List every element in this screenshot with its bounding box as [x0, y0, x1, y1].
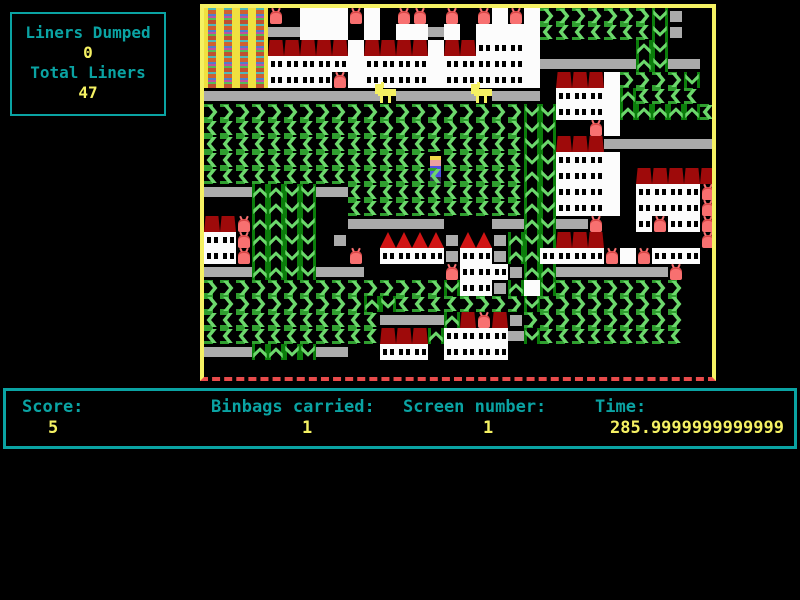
chevron-left-glyph — [364, 328, 380, 344]
gray-block-tile — [444, 232, 460, 248]
ladder-down-tile — [524, 104, 540, 120]
chevron-left-glyph — [268, 328, 284, 344]
building-window-tile — [572, 200, 588, 216]
chevron-left-tile — [220, 168, 236, 184]
chevron-left-tile — [236, 136, 252, 152]
building-window-tile — [444, 328, 460, 344]
chevron-left-glyph — [220, 312, 236, 328]
chevron-right-glyph — [556, 296, 572, 312]
roof-flat-tile — [300, 40, 316, 56]
ladder-up-glyph — [268, 264, 284, 280]
chevron-left-tile — [252, 136, 268, 152]
chevron-right-glyph — [252, 280, 268, 296]
chevron-left-tile — [332, 168, 348, 184]
binbag-tile — [332, 72, 348, 88]
chevron-left-tile — [364, 120, 380, 136]
building-window-tile — [556, 152, 572, 168]
chevron-left-tile — [284, 120, 300, 136]
building-window-tile — [284, 56, 300, 72]
screen-number-label: Screen number: — [403, 397, 546, 417]
building-window-tile — [476, 56, 492, 72]
chevron-left-tile — [284, 328, 300, 344]
chevron-left-glyph — [636, 88, 652, 104]
building-window-tile — [268, 56, 284, 72]
chevron-left-tile — [300, 136, 316, 152]
chevron-right-tile — [220, 296, 236, 312]
chevron-right-tile — [316, 104, 332, 120]
chevron-left-glyph — [492, 168, 508, 184]
chevron-left-tile — [380, 136, 396, 152]
chevron-left-glyph — [588, 328, 604, 344]
rainbow-building-tile — [220, 56, 236, 72]
ladder-down-glyph — [300, 264, 316, 280]
building-tile — [604, 200, 620, 216]
building-window-tile — [460, 56, 476, 72]
binbag-tile — [668, 264, 684, 280]
ladder-down-glyph — [540, 120, 556, 136]
chevron-left-glyph — [364, 152, 380, 168]
chevron-left-glyph — [460, 200, 476, 216]
chevron-left-glyph — [476, 136, 492, 152]
chevron-left-glyph — [252, 136, 268, 152]
ladder-down-tile — [540, 200, 556, 216]
building-tile — [428, 56, 444, 72]
ladder-up-glyph — [444, 312, 460, 328]
ladder-up-tile — [668, 104, 684, 120]
binbag-tile — [396, 8, 412, 24]
building-window-tile — [508, 56, 524, 72]
ladder-down-glyph — [524, 136, 540, 152]
game-playfield[interactable] — [200, 4, 716, 381]
building-window-tile — [460, 280, 476, 296]
chevron-right-glyph — [380, 104, 396, 120]
building-window-tile — [572, 152, 588, 168]
building-window-tile — [460, 248, 476, 264]
gray-block-tile — [492, 232, 508, 248]
rainbow-building-tile — [220, 40, 236, 56]
chevron-right-glyph — [508, 120, 524, 136]
chevron-right-tile — [204, 296, 220, 312]
chevron-left-tile — [428, 200, 444, 216]
roof-pitched-tile — [476, 232, 492, 248]
chevron-left-glyph — [412, 184, 428, 200]
roof-pitched-tile — [412, 232, 428, 248]
building-tile — [476, 24, 492, 40]
chevron-left-tile — [412, 296, 428, 312]
chevron-left-tile — [364, 136, 380, 152]
chevron-left-tile — [380, 152, 396, 168]
ladder-down-tile — [284, 232, 300, 248]
building-tile — [412, 24, 428, 40]
building-window-tile — [492, 40, 508, 56]
ladder-up-tile — [268, 200, 284, 216]
chevron-right-glyph — [588, 280, 604, 296]
ladder-down-glyph — [524, 296, 540, 312]
roof-flat-tile — [588, 72, 604, 88]
binbag-tile — [236, 232, 252, 248]
ladder-down-tile — [444, 280, 460, 296]
building-window-tile — [460, 344, 476, 360]
chevron-left-tile — [204, 328, 220, 344]
chevron-right-tile — [332, 104, 348, 120]
chevron-left-glyph — [236, 328, 252, 344]
binbag-glyph — [446, 11, 458, 24]
chevron-left-tile — [236, 328, 252, 344]
chevron-left-glyph — [364, 200, 380, 216]
conveyor-tile — [508, 216, 524, 232]
chevron-left-glyph — [204, 152, 220, 168]
chevron-right-tile — [220, 104, 236, 120]
roof-flat-tile — [268, 40, 284, 56]
chevron-left-tile — [652, 328, 668, 344]
conveyor-tile — [668, 56, 684, 72]
chevron-right-glyph — [348, 280, 364, 296]
chevron-left-tile — [316, 312, 332, 328]
chevron-left-tile — [220, 136, 236, 152]
ladder-up-glyph — [268, 344, 284, 360]
ladder-down-tile — [284, 248, 300, 264]
chevron-left-tile — [236, 168, 252, 184]
chevron-right-glyph — [236, 104, 252, 120]
conveyor-tile — [652, 264, 668, 280]
ladder-up-glyph — [668, 104, 684, 120]
ladder-up-tile — [636, 104, 652, 120]
chevron-right-glyph — [572, 296, 588, 312]
binbag-tile — [508, 8, 524, 24]
ladder-up-tile — [268, 184, 284, 200]
conveyor-tile — [316, 264, 332, 280]
chevron-right-tile — [540, 312, 556, 328]
ladder-down-tile — [300, 232, 316, 248]
building-window-tile — [396, 56, 412, 72]
ladder-down-glyph — [540, 280, 556, 296]
chevron-right-tile — [396, 120, 412, 136]
rainbow-building-tile — [236, 40, 252, 56]
rainbow-building-tile — [220, 8, 236, 24]
ladder-down-glyph — [524, 104, 540, 120]
chevron-left-tile — [508, 136, 524, 152]
roof-flat-tile — [652, 168, 668, 184]
conveyor-tile — [556, 264, 572, 280]
ladder-up-glyph — [636, 40, 652, 56]
chevron-right-glyph — [236, 280, 252, 296]
chevron-left-glyph — [444, 168, 460, 184]
chevron-left-glyph — [316, 328, 332, 344]
chevron-left-tile — [460, 168, 476, 184]
chevron-left-glyph — [412, 152, 428, 168]
ladder-up-tile — [428, 328, 444, 344]
chevron-right-tile — [652, 72, 668, 88]
chevron-right-tile — [652, 312, 668, 328]
building-window-tile — [572, 168, 588, 184]
building-window-tile — [588, 200, 604, 216]
chevron-left-glyph — [300, 152, 316, 168]
chevron-right-glyph — [540, 8, 556, 24]
building-window-tile — [492, 264, 508, 280]
conveyor-tile — [204, 88, 220, 104]
chevron-left-glyph — [444, 296, 460, 312]
conveyor-tile — [668, 136, 684, 152]
ladder-up-glyph — [540, 136, 556, 152]
chevron-right-glyph — [428, 120, 444, 136]
conveyor-tile — [588, 264, 604, 280]
chevron-left-glyph — [204, 312, 220, 328]
ladder-down-glyph — [540, 104, 556, 120]
building-window-tile — [412, 72, 428, 88]
ladder-up-tile — [268, 216, 284, 232]
binbag-glyph — [270, 11, 282, 24]
building-window-tile — [556, 168, 572, 184]
chevron-right-tile — [300, 280, 316, 296]
chevron-left-glyph — [412, 168, 428, 184]
building-window-tile — [684, 248, 700, 264]
ladder-down-glyph — [300, 184, 316, 200]
chevron-right-tile — [620, 72, 636, 88]
rainbow-building-tile — [204, 40, 220, 56]
time-value: 285.9999999999999 — [610, 418, 784, 438]
building-window-tile — [380, 56, 396, 72]
ladder-down-tile — [300, 216, 316, 232]
chevron-left-tile — [316, 120, 332, 136]
ladder-down-tile — [300, 344, 316, 360]
chevron-right-tile — [332, 296, 348, 312]
chevron-right-tile — [428, 120, 444, 136]
building-window-tile — [588, 248, 604, 264]
roof-flat-tile — [396, 40, 412, 56]
chevron-right-tile — [636, 296, 652, 312]
binbag-glyph — [398, 11, 410, 24]
ladder-down-tile — [652, 24, 668, 40]
ladder-up-tile — [524, 200, 540, 216]
chevron-left-tile — [428, 296, 444, 312]
building-window-tile — [492, 56, 508, 72]
rainbow-building-tile — [204, 8, 220, 24]
chevron-left-tile — [620, 24, 636, 40]
ladder-down-tile — [540, 216, 556, 232]
chevron-right-glyph — [588, 8, 604, 24]
chevron-right-tile — [556, 8, 572, 24]
time-label: Time: — [595, 397, 646, 417]
chevron-left-tile — [556, 328, 572, 344]
chevron-left-glyph — [332, 328, 348, 344]
conveyor-tile — [332, 344, 348, 360]
chevron-right-glyph — [396, 104, 412, 120]
chevron-left-tile — [316, 328, 332, 344]
building-window-tile — [684, 200, 700, 216]
building-window-tile — [572, 104, 588, 120]
ladder-up-tile — [540, 136, 556, 152]
chevron-left-tile — [588, 328, 604, 344]
ladder-down-glyph — [300, 200, 316, 216]
chevron-left-tile — [396, 152, 412, 168]
ladder-up-tile — [524, 264, 540, 280]
chevron-left-tile — [572, 24, 588, 40]
chevron-right-glyph — [636, 280, 652, 296]
chevron-left-tile — [396, 184, 412, 200]
chevron-right-tile — [300, 104, 316, 120]
chevron-right-glyph — [396, 120, 412, 136]
ladder-up-tile — [364, 296, 380, 312]
chevron-right-glyph — [652, 312, 668, 328]
chevron-right-tile — [300, 296, 316, 312]
building-window-tile — [220, 248, 236, 264]
chevron-right-glyph — [492, 296, 508, 312]
building-window-tile — [412, 344, 428, 360]
chevron-left-glyph — [588, 24, 604, 40]
building-window-tile — [428, 248, 444, 264]
chevron-right-tile — [652, 280, 668, 296]
binbag-tile — [476, 8, 492, 24]
chevron-left-tile — [492, 184, 508, 200]
chevron-left-glyph — [428, 168, 444, 184]
chevron-right-glyph — [652, 72, 668, 88]
conveyor-tile — [412, 88, 428, 104]
chevron-right-tile — [364, 104, 380, 120]
chevron-left-tile — [428, 136, 444, 152]
chevron-left-glyph — [460, 168, 476, 184]
ladder-down-glyph — [540, 200, 556, 216]
chevron-right-glyph — [220, 296, 236, 312]
chevron-left-tile — [268, 120, 284, 136]
chevron-left-tile — [396, 200, 412, 216]
ladder-down-tile — [300, 184, 316, 200]
building-window-tile — [316, 56, 332, 72]
chevron-left-glyph — [508, 152, 524, 168]
building-tile — [492, 24, 508, 40]
chevron-right-tile — [380, 120, 396, 136]
chevron-left-tile — [636, 328, 652, 344]
binbag-glyph — [350, 251, 362, 264]
conveyor-tile — [300, 88, 316, 104]
chevron-right-tile — [476, 120, 492, 136]
conveyor-tile — [252, 88, 268, 104]
rainbow-building-tile — [204, 56, 220, 72]
chevron-left-glyph — [380, 136, 396, 152]
chevron-left-glyph — [476, 184, 492, 200]
conveyor-tile — [588, 56, 604, 72]
conveyor-tile — [236, 184, 252, 200]
chevron-left-glyph — [476, 152, 492, 168]
roof-pitched-tile — [428, 232, 444, 248]
chevron-right-glyph — [252, 104, 268, 120]
conveyor-tile — [332, 88, 348, 104]
chevron-left-glyph — [220, 328, 236, 344]
roof-flat-tile — [588, 232, 604, 248]
building-window-tile — [572, 88, 588, 104]
chevron-right-tile — [252, 104, 268, 120]
roof-flat-tile — [556, 72, 572, 88]
building-window-tile — [492, 344, 508, 360]
conveyor-tile — [540, 56, 556, 72]
chevron-left-glyph — [396, 296, 412, 312]
ladder-up-glyph — [268, 200, 284, 216]
ladder-up-tile — [268, 264, 284, 280]
building-tile — [300, 8, 316, 24]
building-tile — [524, 40, 540, 56]
chevron-left-glyph — [476, 200, 492, 216]
chevron-left-tile — [204, 312, 220, 328]
rainbow-building-tile — [252, 24, 268, 40]
binbag-tile — [348, 8, 364, 24]
chevron-left-tile — [412, 136, 428, 152]
ladder-up-tile — [652, 104, 668, 120]
conveyor-tile — [348, 264, 364, 280]
ladder-down-tile — [524, 328, 540, 344]
ladder-up-glyph — [524, 216, 540, 232]
chevron-right-glyph — [652, 296, 668, 312]
chevron-left-glyph — [284, 312, 300, 328]
total-liners-label: Total Liners — [12, 63, 164, 83]
building-window-tile — [556, 88, 572, 104]
building-window-tile — [476, 40, 492, 56]
ladder-up-glyph — [508, 232, 524, 248]
binbag-tile — [700, 232, 716, 248]
ladder-down-glyph — [652, 24, 668, 40]
chevron-left-glyph — [220, 136, 236, 152]
chevron-right-glyph — [668, 280, 684, 296]
gray-block-tile — [444, 248, 460, 264]
chevron-left-glyph — [540, 328, 556, 344]
binbag-glyph — [238, 235, 250, 248]
chevron-left-tile — [540, 328, 556, 344]
chevron-left-glyph — [636, 24, 652, 40]
building-tile — [348, 40, 364, 56]
chevron-left-glyph — [380, 200, 396, 216]
building-window-tile — [572, 248, 588, 264]
chevron-left-tile — [444, 152, 460, 168]
building-window-tile — [220, 232, 236, 248]
building-window-tile — [396, 344, 412, 360]
chevron-left-glyph — [316, 168, 332, 184]
ladder-up-glyph — [428, 328, 444, 344]
chevron-right-glyph — [460, 104, 476, 120]
roof-flat-tile — [572, 72, 588, 88]
chevron-left-tile — [348, 136, 364, 152]
chevron-right-tile — [492, 296, 508, 312]
rainbow-building-tile — [252, 40, 268, 56]
chevron-left-glyph — [492, 200, 508, 216]
chevron-left-glyph — [460, 136, 476, 152]
binbags-label: Binbags carried: — [211, 397, 375, 417]
chevron-left-glyph — [444, 136, 460, 152]
building-window-tile — [284, 72, 300, 88]
chevron-left-tile — [380, 184, 396, 200]
chevron-left-glyph — [268, 168, 284, 184]
chevron-left-glyph — [700, 104, 716, 120]
chevron-right-glyph — [476, 104, 492, 120]
ladder-up-tile — [508, 232, 524, 248]
ladder-down-tile — [652, 40, 668, 56]
chevron-right-glyph — [204, 104, 220, 120]
conveyor-tile — [620, 264, 636, 280]
binbag-glyph — [238, 251, 250, 264]
chevron-left-glyph — [316, 152, 332, 168]
chevron-right-tile — [572, 8, 588, 24]
chevron-left-tile — [268, 168, 284, 184]
chevron-left-tile — [604, 24, 620, 40]
chevron-left-glyph — [508, 184, 524, 200]
building-tile — [508, 24, 524, 40]
chevron-right-glyph — [428, 280, 444, 296]
building-tile — [524, 280, 540, 296]
ladder-up-tile — [268, 344, 284, 360]
building-tile — [524, 8, 540, 24]
chevron-left-glyph — [668, 328, 684, 344]
ladder-down-tile — [540, 120, 556, 136]
building-window-tile — [556, 248, 572, 264]
building-window-tile — [364, 56, 380, 72]
chevron-left-glyph — [492, 152, 508, 168]
